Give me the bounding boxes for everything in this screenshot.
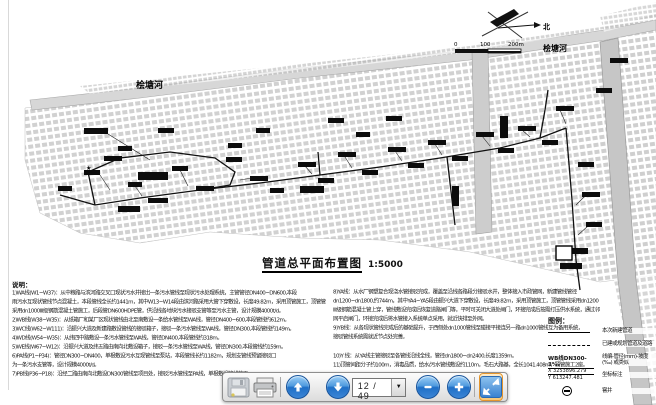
save-icon [227,377,251,398]
page-number-value: 12 / 49 [353,379,392,396]
next-page-button[interactable] [326,375,350,399]
legend-symbol-existing [548,345,594,346]
print-icon [253,377,277,398]
previous-page-button[interactable] [286,375,310,399]
pump-station-symbol [556,246,572,260]
note-line: 1)WA线(W1~W37)：从中粮路与滨河路交叉口现状污水井接出一条污水管线至现… [12,289,308,297]
chevron-down-icon: ▼ [396,384,402,390]
legend-label: 本次新建管道 [602,328,656,334]
legend-label: 窨井 [602,388,656,394]
note-line: dn1200~dn1800,约744m，其中YA4~YA5段由振兴大道下穿敷设，… [333,297,632,305]
svg-text:100: 100 [480,42,491,48]
note-line: 3)WC线(W62~W111)：沿振兴大道及新建路敷设管线的接驳箱子，接驳一条污… [12,325,308,333]
notes-heading: 说明： [12,279,334,289]
zoom-out-button[interactable] [416,375,440,399]
note-line: 采用dn1000Ⅲ级钢筋混凝土管施工，后段管DN600HDPE管，供沿线各地块污… [12,307,308,315]
minus-icon [422,381,434,393]
north-label: 北 [543,22,550,31]
page-number-input[interactable]: 12 / 49 ▼ [352,378,407,397]
legend-symbol-new-pipe [548,332,594,333]
drawing-title-row: 管道总平面布置图1:5000 [262,252,403,271]
print-button[interactable] [253,375,277,399]
legend-heading: 图例： [548,316,656,326]
toolbar-separator [280,377,281,397]
note-line: 6)PA线(P1~P34)：管径DN300~DN400，单根敷设污水互现管线至泵… [12,352,308,360]
legend-label: 线编-管径(mm)-坡度(‰) 或类似 [602,354,656,366]
note-line: 5)WE线(W67~W12)：沿振兴大道及纬五路由南向北敷设箱子，接驳一条污水管… [12,343,308,351]
plus-icon [453,381,465,393]
note-line: 8)YA线：从水厂钢塑复合现浇水管接驳完成，覆盖至沿线各路段分接驳水井，整体接入… [333,288,632,296]
note-line: 2)WB线(W38~W35)：从纸箱厂和某厂区现状管线由北至南敷设一条给水管线至… [12,316,308,324]
viewer-toolbar: 12 / 49 ▼ [222,372,508,402]
arrow-up-icon [292,381,304,393]
page-dropdown-button[interactable]: ▼ [391,379,405,396]
note-line: 4)WD线(W54~W35)：从纬四中路敷设一条污水管线至WA线，管径DN400… [12,334,308,342]
sheet-border [8,0,9,390]
coord-y-sample: Y 613247.481 [548,375,594,381]
legend-label: 坐标标注 [602,372,656,378]
legend-label: 已建或规划管道及道路 [602,341,656,347]
star-marker: ★ [86,165,91,172]
exit-read-mode-button[interactable] [479,373,503,401]
svg-text:200m: 200m [508,42,524,48]
arrow-down-icon [332,381,344,393]
note-line: 雨污水互现状管线节点混凝土，本段管线全长约1441m，其中W13~W14段由滨河… [12,298,308,306]
north-arrow-icon: 北 [482,9,550,38]
resize-arrows-icon [480,376,502,398]
legend-symbol-manhole [548,386,608,396]
drawing-scale: 1:5000 [368,260,403,270]
legend: 图例： 本次新建管道 已建或规划管道及道路 WB线DN300-3‰ 线编-管径(… [548,316,656,326]
legend-symbol-coords: X 3253896.279 Y 613247.481 [548,368,594,381]
note-line: Ⅲ级钢筋混凝土管上穿，管线敷设完成后恢复道路闸门等，平时可关闭大道处闸门，环接完… [333,306,632,314]
pdf-viewer-page: ★ 桧塘河 桧塘河 北 0 100 200m 管道总平面布置图1:5000 说明… [0,0,656,405]
save-button[interactable] [227,375,251,399]
note-line: 为一条污水支管等，设计规模4000t/d。 [12,361,308,369]
river-label-right: 桧塘河 [543,43,567,53]
svg-text:0: 0 [454,42,458,48]
page-title: 管道总平面布置图 [262,256,362,273]
note-line: 接驳管线系统需就近节点处完善。 [333,333,632,341]
zoom-in-button[interactable] [447,375,471,399]
notes-column-left: 说明： 1)WA线(W1~W37)：从中粮路与滨河路交叉口现状污水井接出一条污水… [12,279,334,379]
legend-symbol-code: WB线DN300-3‰ [548,354,594,369]
river-label-left: 桧塘河 [136,79,163,91]
toolbar-separator [474,377,475,397]
coord-x-sample: X 3253896.279 [548,368,594,375]
